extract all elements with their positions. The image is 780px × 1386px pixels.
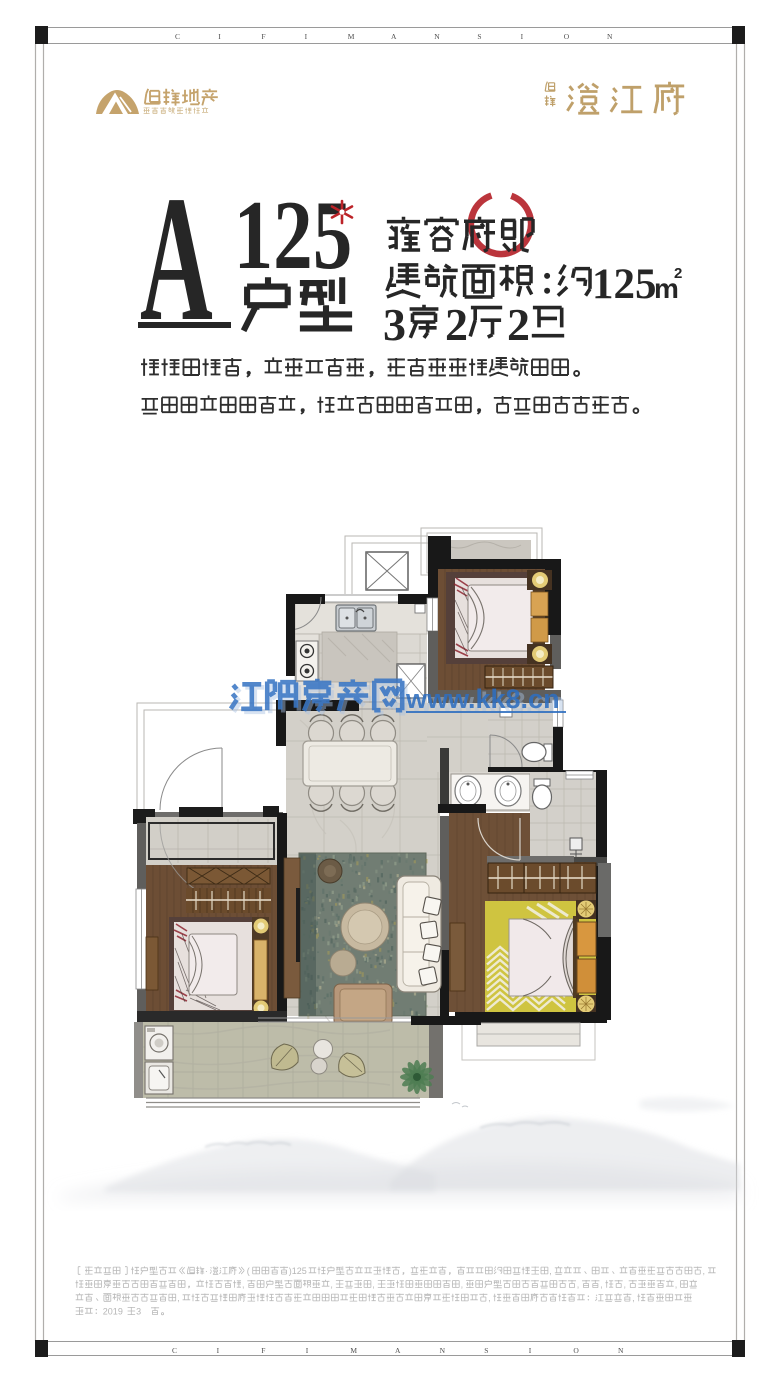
svg-text:,: , (372, 1280, 375, 1290)
svg-text:C: C (172, 1346, 177, 1355)
svg-text:(: ( (247, 1266, 250, 1276)
svg-text:C: C (175, 32, 180, 41)
svg-text:,: , (600, 1280, 603, 1290)
svg-text:S: S (477, 32, 481, 41)
svg-text:N: N (440, 1346, 446, 1355)
svg-text:,: , (461, 1280, 464, 1290)
svg-text:3: 3 (136, 1307, 141, 1317)
svg-text:125: 125 (592, 261, 657, 308)
svg-text:2: 2 (445, 299, 468, 350)
svg-text:A: A (395, 1346, 401, 1355)
svg-text:3: 3 (383, 299, 406, 350)
svg-text:)125: )125 (289, 1266, 307, 1276)
svg-text:2019: 2019 (103, 1307, 123, 1317)
svg-text:F: F (261, 1346, 265, 1355)
svg-text:2: 2 (674, 265, 682, 282)
svg-text:,: , (675, 1280, 678, 1290)
svg-text:2: 2 (507, 299, 530, 350)
svg-text:,: , (577, 1280, 580, 1290)
svg-text:,: , (549, 1266, 552, 1276)
svg-text:A: A (140, 159, 213, 359)
svg-text:125: 125 (234, 181, 353, 290)
svg-text:·: · (205, 1266, 208, 1276)
svg-text:,: , (177, 1293, 180, 1303)
svg-text:,: , (624, 1280, 627, 1290)
svg-text:F: F (261, 32, 265, 41)
svg-text:N: N (607, 32, 613, 41)
svg-text:www.kk8.cn: www.kk8.cn (405, 684, 560, 714)
svg-text:O: O (573, 1346, 579, 1355)
svg-text:,: , (488, 1293, 491, 1303)
svg-text:N: N (618, 1346, 624, 1355)
svg-text:,: , (330, 1280, 333, 1290)
svg-text:,: , (632, 1293, 635, 1303)
svg-text:O: O (564, 32, 570, 41)
svg-text:,: , (242, 1280, 245, 1290)
svg-text:,: , (703, 1266, 706, 1276)
svg-text:A: A (391, 32, 397, 41)
svg-text:M: M (348, 32, 355, 41)
svg-text:M: M (350, 1346, 357, 1355)
svg-text:S: S (484, 1346, 488, 1355)
svg-text:N: N (434, 32, 440, 41)
